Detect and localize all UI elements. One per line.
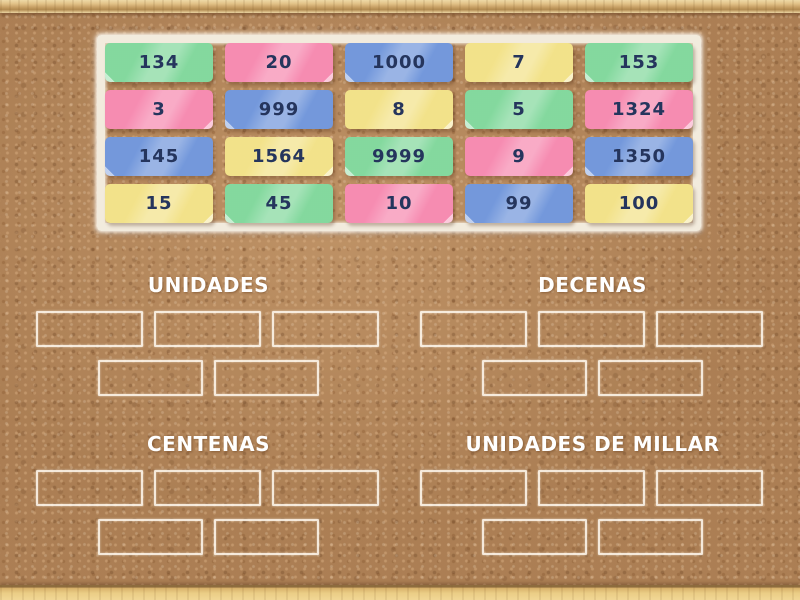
number-card[interactable]: 1324: [585, 90, 693, 129]
drop-slot[interactable]: [656, 311, 763, 347]
group-centenas: CENTENAS: [36, 427, 381, 559]
drop-slot[interactable]: [214, 360, 319, 396]
number-card[interactable]: 20: [225, 43, 333, 82]
drop-slot[interactable]: [98, 360, 203, 396]
drop-slot[interactable]: [272, 311, 379, 347]
number-card[interactable]: 5: [465, 90, 573, 129]
number-card[interactable]: 9999: [345, 137, 453, 176]
group-decenas: DECENAS: [420, 268, 765, 400]
drop-slot[interactable]: [598, 519, 703, 555]
cards-tray: 134 20 1000 7 153 3 999 8 5 1324 145 156…: [97, 35, 701, 231]
slot-row: [482, 519, 703, 555]
drop-slot[interactable]: [482, 519, 587, 555]
drop-slot[interactable]: [272, 470, 379, 506]
drop-slot[interactable]: [598, 360, 703, 396]
drop-slot[interactable]: [214, 519, 319, 555]
card-value: 45: [265, 193, 292, 214]
slot-row: [420, 311, 763, 347]
number-card[interactable]: 100: [585, 184, 693, 223]
number-card[interactable]: 7: [465, 43, 573, 82]
number-card[interactable]: 10: [345, 184, 453, 223]
number-card[interactable]: 15: [105, 184, 213, 223]
card-value: 9999: [372, 146, 426, 167]
drop-slot[interactable]: [154, 311, 261, 347]
group-unidades: UNIDADES: [36, 268, 381, 400]
number-card[interactable]: 1000: [345, 43, 453, 82]
drop-slot[interactable]: [538, 311, 645, 347]
card-value: 153: [619, 52, 660, 73]
card-value: 3: [152, 99, 166, 120]
card-value: 10: [385, 193, 412, 214]
card-value: 999: [259, 99, 300, 120]
number-card[interactable]: 99: [465, 184, 573, 223]
corkboard: 134 20 1000 7 153 3 999 8 5 1324 145 156…: [0, 0, 800, 600]
card-value: 1350: [612, 146, 666, 167]
card-value: 99: [505, 193, 532, 214]
card-value: 5: [512, 99, 526, 120]
number-card[interactable]: 999: [225, 90, 333, 129]
card-value: 100: [619, 193, 660, 214]
slot-row: [98, 519, 319, 555]
drop-slot[interactable]: [656, 470, 763, 506]
number-card[interactable]: 3: [105, 90, 213, 129]
slot-row: [98, 360, 319, 396]
card-value: 20: [265, 52, 292, 73]
drop-slot[interactable]: [154, 470, 261, 506]
slot-row: [482, 360, 703, 396]
card-value: 15: [145, 193, 172, 214]
drop-slot[interactable]: [420, 470, 527, 506]
card-value: 1000: [372, 52, 426, 73]
number-card[interactable]: 145: [105, 137, 213, 176]
slot-row: [36, 311, 379, 347]
group-label-decenas: DECENAS: [420, 273, 765, 297]
drop-slot[interactable]: [482, 360, 587, 396]
drop-slot[interactable]: [36, 470, 143, 506]
number-card[interactable]: 1350: [585, 137, 693, 176]
wood-frame-bottom: [0, 585, 800, 600]
wood-frame-top: [0, 0, 800, 13]
number-card[interactable]: 45: [225, 184, 333, 223]
card-value: 7: [512, 52, 526, 73]
drop-slot[interactable]: [538, 470, 645, 506]
group-unidades-de-millar: UNIDADES DE MILLAR: [420, 427, 765, 559]
drop-slot[interactable]: [420, 311, 527, 347]
drop-slot[interactable]: [36, 311, 143, 347]
number-card[interactable]: 134: [105, 43, 213, 82]
slot-row: [420, 470, 763, 506]
card-value: 9: [512, 146, 526, 167]
card-value: 145: [139, 146, 180, 167]
card-value: 134: [139, 52, 180, 73]
number-card[interactable]: 8: [345, 90, 453, 129]
number-card[interactable]: 153: [585, 43, 693, 82]
group-label-unidades-de-millar: UNIDADES DE MILLAR: [420, 432, 765, 456]
drop-slot[interactable]: [98, 519, 203, 555]
group-label-centenas: CENTENAS: [36, 432, 381, 456]
group-label-unidades: UNIDADES: [36, 273, 381, 297]
number-card[interactable]: 9: [465, 137, 573, 176]
card-value: 1324: [612, 99, 666, 120]
card-value: 8: [392, 99, 406, 120]
number-card[interactable]: 1564: [225, 137, 333, 176]
slot-row: [36, 470, 379, 506]
card-value: 1564: [252, 146, 306, 167]
